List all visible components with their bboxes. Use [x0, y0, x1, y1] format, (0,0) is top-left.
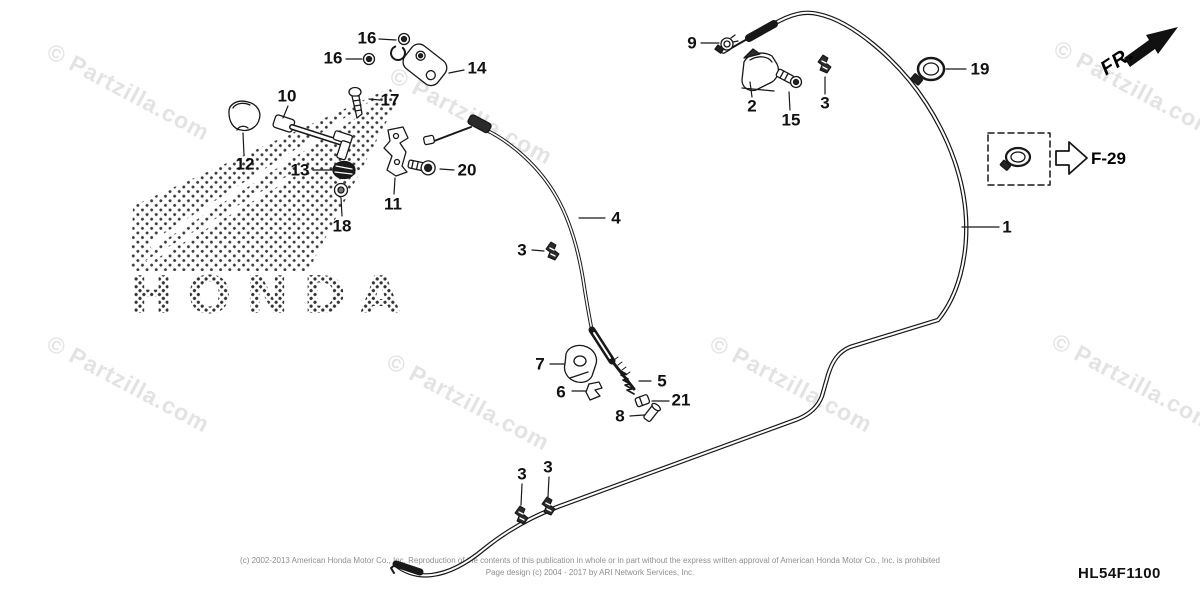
part-12-knob-icon — [229, 101, 260, 130]
part-3-clip-icon — [542, 497, 555, 515]
honda-wordmark: HONDA — [130, 266, 415, 326]
callout-6[interactable]: 6 — [556, 384, 565, 401]
part-13-grommet-icon — [333, 162, 355, 179]
callout-16-a[interactable]: 16 — [358, 30, 377, 47]
part-14-bracket-icon — [399, 40, 450, 89]
callout-13[interactable]: 13 — [291, 162, 310, 179]
part-2-bracket-icon — [742, 49, 778, 91]
part-6-clip-icon — [586, 382, 602, 400]
callout-19[interactable]: 19 — [971, 61, 990, 78]
part-11-bracket-icon — [384, 127, 408, 176]
parts-diagram-art: HONDA — [0, 0, 1200, 600]
callout-7[interactable]: 7 — [535, 356, 544, 373]
part-1-control-cable — [391, 13, 966, 576]
callout-3-bottom-left[interactable]: 3 — [517, 466, 526, 483]
ref-clamp-icon — [1000, 148, 1030, 171]
callout-11[interactable]: 11 — [384, 196, 402, 213]
callout-14[interactable]: 14 — [468, 60, 487, 77]
callout-17[interactable]: 17 — [381, 92, 400, 109]
callout-20[interactable]: 20 — [458, 162, 477, 179]
part-3-clip-icon — [818, 55, 831, 73]
ref-box — [988, 133, 1087, 185]
callout-1[interactable]: 1 — [1002, 219, 1011, 236]
callout-18[interactable]: 18 — [333, 218, 352, 235]
part-3-clip-icon — [546, 242, 559, 260]
part-20-bolt-icon — [407, 157, 436, 176]
callout-3-mid[interactable]: 3 — [517, 242, 526, 259]
ref-page-label[interactable]: F-29 — [1091, 149, 1126, 169]
part-8-pin-icon — [642, 402, 661, 423]
part-19-band-clamp-icon — [911, 58, 944, 85]
part-16b-bolt-icon — [364, 54, 375, 65]
ref-arrow-icon — [1056, 142, 1087, 174]
part-4-inner-cable — [423, 114, 634, 389]
callout-2[interactable]: 2 — [747, 98, 756, 115]
callout-3-bottom-right[interactable]: 3 — [543, 459, 552, 476]
callout-8[interactable]: 8 — [615, 408, 624, 425]
part-21-collar-icon — [635, 394, 650, 407]
part-3-clip-icon — [515, 506, 528, 524]
part-15-bolt-icon — [775, 67, 804, 89]
callout-21[interactable]: 21 — [672, 392, 691, 409]
diagram-code: HL54F1100 — [1078, 565, 1161, 582]
callout-12[interactable]: 12 — [236, 156, 255, 173]
callout-3-top[interactable]: 3 — [820, 95, 829, 112]
callout-10[interactable]: 10 — [278, 88, 297, 105]
part-18-nut-icon — [335, 184, 348, 197]
part-9-clamp-icon — [715, 35, 738, 53]
callout-4[interactable]: 4 — [611, 210, 620, 227]
honda-wing-watermark: HONDA — [130, 88, 415, 326]
callout-9[interactable]: 9 — [687, 35, 696, 52]
callout-15[interactable]: 15 — [782, 112, 801, 129]
part-7-boot-icon — [564, 345, 596, 382]
callout-16-b[interactable]: 16 — [324, 50, 343, 67]
callout-5[interactable]: 5 — [657, 373, 666, 390]
